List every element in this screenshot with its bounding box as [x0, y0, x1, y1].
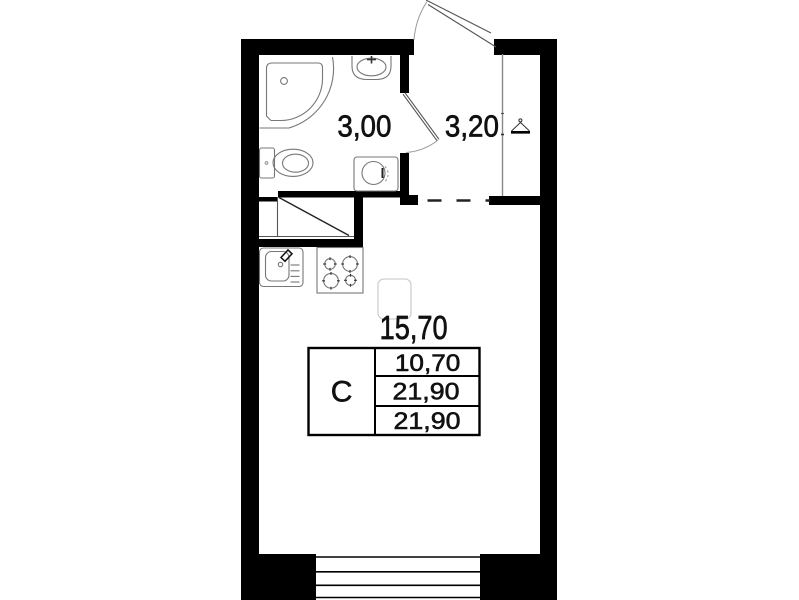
svg-text:С: С: [331, 376, 353, 409]
svg-text:21,90: 21,90: [393, 378, 460, 405]
svg-text:3,20: 3,20: [445, 108, 499, 143]
svg-text:15,70: 15,70: [380, 310, 448, 347]
svg-text:21,90: 21,90: [394, 408, 461, 435]
svg-text:3,00: 3,00: [337, 108, 391, 143]
svg-text:10,70: 10,70: [395, 350, 461, 377]
